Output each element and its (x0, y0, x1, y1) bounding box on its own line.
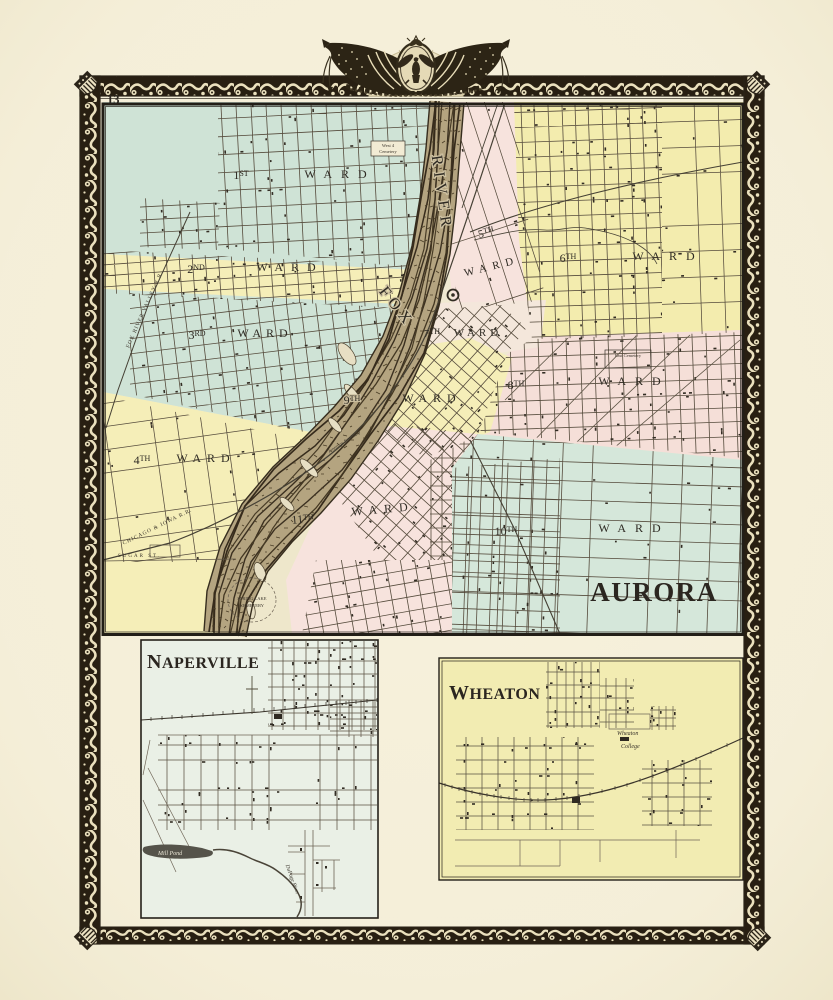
svg-text:WARD: WARD (304, 167, 375, 181)
svg-text:AURORA: AURORA (590, 577, 718, 607)
svg-text:East Cemetery: East Cemetery (615, 353, 642, 358)
svg-text:WARD: WARD (237, 326, 292, 340)
svg-text:College: College (621, 744, 640, 750)
svg-text:13: 13 (107, 93, 120, 107)
svg-text:WHEATON: WHEATON (449, 682, 540, 704)
svg-text:WARD: WARD (256, 260, 323, 274)
svg-text:WARD: WARD (402, 391, 461, 405)
svg-text:Mill Pond: Mill Pond (157, 851, 183, 857)
svg-text:West 4: West 4 (382, 143, 395, 148)
svg-text:WARD: WARD (598, 521, 669, 535)
svg-text:SPRING LAKE: SPRING LAKE (237, 596, 266, 601)
svg-text:WARD: WARD (632, 249, 703, 263)
svg-text:CEMETERY: CEMETERY (240, 603, 265, 608)
svg-text:SUGAR ST.: SUGAR ST. (118, 554, 161, 559)
svg-text:WARD: WARD (454, 327, 502, 339)
svg-text:Wheaton: Wheaton (617, 731, 638, 737)
svg-text:Cemetery: Cemetery (379, 149, 397, 154)
svg-text:WARD: WARD (598, 374, 669, 388)
svg-text:WARD: WARD (176, 451, 235, 465)
svg-text:NAPERVILLE: NAPERVILLE (147, 651, 259, 673)
